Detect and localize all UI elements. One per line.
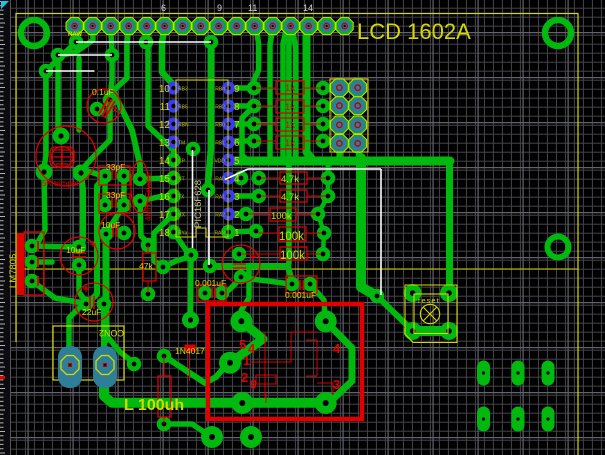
svg-text:33pF: 33pF [106, 162, 125, 172]
svg-text:CP: CP [178, 159, 186, 165]
svg-text:VDD: VDD [214, 159, 225, 165]
svg-text:RA2: RA2 [215, 213, 225, 219]
svg-text:RA0: RA0 [215, 177, 225, 183]
svg-text:RBN: RBN [178, 123, 189, 129]
svg-text:CON2: CON2 [99, 328, 124, 338]
svg-text:1k: 1k [285, 120, 295, 131]
svg-text:g: g [250, 377, 257, 389]
svg-text:RB1: RB1 [215, 141, 225, 147]
svg-text:15: 15 [159, 174, 171, 185]
svg-text:L 100uh: L 100uh [124, 397, 184, 414]
svg-text:1k: 1k [285, 83, 295, 94]
svg-text:3: 3 [234, 192, 240, 203]
svg-text:1: 1 [243, 353, 250, 368]
svg-text:10uF: 10uF [66, 245, 85, 255]
svg-text:5K trimpot: 5K trimpot [42, 179, 79, 188]
svg-text:reset: reset [418, 296, 440, 305]
svg-text:9: 9 [217, 3, 222, 13]
svg-text:47k: 47k [139, 261, 153, 271]
svg-text:NT: NT [178, 177, 185, 183]
svg-text:17: 17 [159, 210, 171, 221]
svg-text:8: 8 [234, 102, 240, 113]
svg-text:RAW: RAW [68, 32, 82, 38]
svg-text:RB3: RB3 [178, 87, 188, 93]
svg-text:TM: TM [178, 141, 185, 147]
svg-text:6: 6 [234, 138, 240, 149]
svg-text:11: 11 [248, 3, 257, 13]
svg-text:RB4: RB4 [215, 87, 225, 93]
svg-text:2: 2 [234, 210, 240, 221]
svg-text:RX: RX [178, 213, 186, 219]
svg-text:1k: 1k [285, 138, 295, 149]
svg-text:4.7k: 4.7k [281, 192, 299, 203]
svg-text:9: 9 [234, 84, 240, 95]
svg-text:14: 14 [303, 3, 313, 13]
svg-text:16: 16 [159, 192, 171, 203]
svg-text:1N4017: 1N4017 [175, 346, 205, 356]
svg-text:11: 11 [160, 102, 171, 113]
svg-text:LCD 1602A: LCD 1602A [357, 19, 471, 44]
svg-text:RB2: RB2 [215, 105, 225, 111]
svg-text:RB0: RB0 [215, 123, 225, 129]
svg-text:10: 10 [159, 84, 171, 95]
svg-text:0.001uF: 0.001uF [195, 278, 226, 288]
svg-text:RYa: RYa [178, 231, 187, 237]
svg-text:RAN: RAN [214, 231, 225, 237]
svg-text:RA1: RA1 [215, 195, 225, 201]
svg-text:33pF: 33pF [106, 190, 125, 200]
svg-text:4: 4 [333, 341, 341, 356]
svg-text:100k: 100k [271, 211, 292, 222]
svg-text:0.001uF: 0.001uF [285, 290, 316, 300]
svg-text:13: 13 [159, 138, 171, 149]
svg-text:0.1uF: 0.1uF [92, 87, 114, 97]
svg-text:5: 5 [234, 156, 240, 167]
svg-text:18: 18 [159, 228, 171, 239]
svg-text:4.7k: 4.7k [281, 174, 299, 185]
svg-text:1: 1 [234, 228, 240, 239]
svg-text:PIC16F628: PIC16F628 [193, 180, 204, 228]
svg-text:RB5: RB5 [178, 105, 188, 111]
svg-text:22uF: 22uF [82, 307, 101, 317]
svg-text:7: 7 [234, 120, 240, 131]
svg-text:14: 14 [159, 156, 171, 167]
svg-text:12: 12 [159, 120, 171, 131]
svg-text:6: 6 [161, 3, 166, 13]
svg-text:3: 3 [333, 377, 340, 392]
svg-text:10uF: 10uF [101, 220, 120, 230]
svg-text:1k: 1k [285, 102, 295, 113]
svg-text:100k: 100k [279, 231, 304, 243]
svg-text:2: 2 [241, 370, 248, 385]
svg-text:5: 5 [239, 337, 246, 352]
svg-text:TX: TX [178, 195, 185, 201]
svg-text:4MHz Crystal: 4MHz Crystal [144, 173, 153, 221]
svg-text:LM7805: LM7805 [8, 254, 19, 288]
svg-text:100k: 100k [280, 250, 305, 262]
